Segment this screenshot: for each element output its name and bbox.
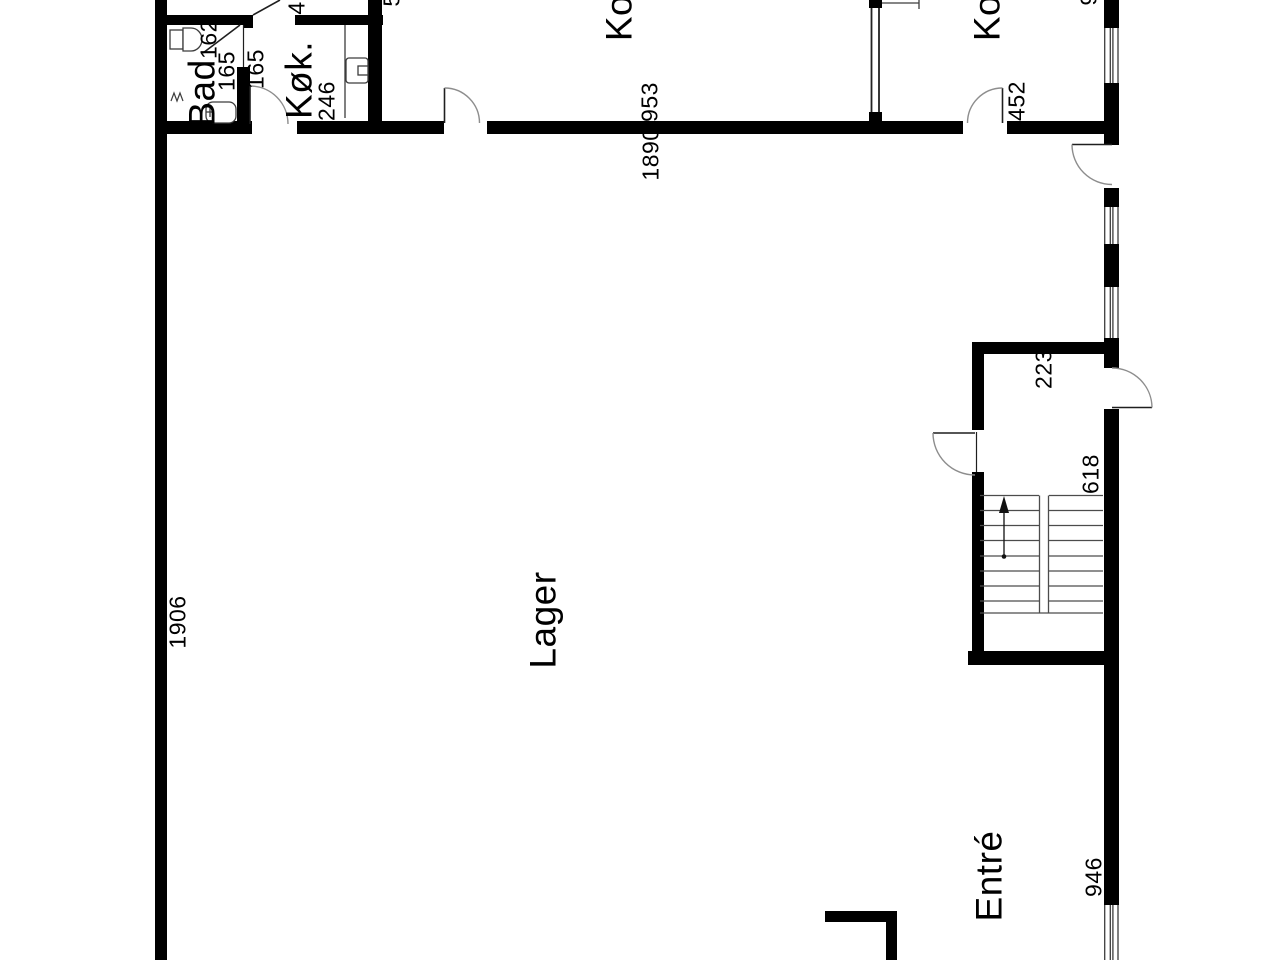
stove-icon xyxy=(346,58,368,83)
dimension-946: 946 xyxy=(1083,857,1106,897)
wall-main-horizontal-b xyxy=(297,121,444,134)
dimension-165-left: 165 xyxy=(216,51,239,91)
dimension-1890: 1890 xyxy=(640,127,663,180)
wall-entre-vertical xyxy=(886,911,897,960)
dimension-618: 618 xyxy=(1080,454,1103,494)
wall-main-horizontal-c xyxy=(487,121,963,134)
wall-stair-left-a xyxy=(972,342,984,430)
floor-plan-canvas: Bad Køk. Ko Ko Lager Entré 162 165 165 2… xyxy=(0,0,1280,960)
window-right-4 xyxy=(1103,905,1119,960)
door-arc-office-2 xyxy=(968,88,1003,123)
room-label-entre: Entré xyxy=(971,831,1008,922)
wall-partition-cap-top xyxy=(869,0,882,8)
dimension-246: 246 xyxy=(316,81,339,121)
cutoff-furniture-lines xyxy=(882,0,919,9)
wall-stair-left-b xyxy=(972,472,984,654)
wall-left-exterior xyxy=(155,0,167,960)
dimension-fragment-top-1: 5 xyxy=(381,0,404,7)
stair-flight-left xyxy=(980,496,1039,602)
wall-partition-cap-bottom xyxy=(869,112,882,122)
stair-direction-arrow xyxy=(999,496,1009,559)
wall-right-seg-2 xyxy=(1104,83,1119,145)
wall-top-door-stub xyxy=(243,15,253,28)
wall-stair-bottom xyxy=(968,651,1119,665)
wall-main-horizontal-d xyxy=(1007,121,1119,134)
wall-kitchen-right xyxy=(368,0,382,134)
room-label-kontor-2: Ko xyxy=(969,0,1006,41)
window-right-2 xyxy=(1103,207,1119,244)
wall-right-seg-4 xyxy=(1104,244,1119,287)
room-label-kontor-1: Ko xyxy=(601,0,638,41)
dimension-1906: 1906 xyxy=(167,595,190,648)
staircase xyxy=(980,496,1103,614)
wall-right-seg-1 xyxy=(1104,0,1119,28)
door-arc-right-upper xyxy=(1072,145,1112,185)
door-leaf-upper-room xyxy=(253,0,280,15)
stair-flight-right xyxy=(1049,496,1103,602)
dimension-165-right: 165 xyxy=(245,49,268,89)
door-arc-stair-east xyxy=(1112,368,1152,408)
door-arc-stair-west xyxy=(933,433,975,475)
window-right-3 xyxy=(1103,287,1119,338)
dimension-223: 223 xyxy=(1033,349,1056,389)
glass-partition-offices xyxy=(869,8,882,112)
window-right-1 xyxy=(1103,28,1119,83)
dimension-953: 953 xyxy=(639,82,662,122)
door-arcs xyxy=(250,86,1152,475)
door-arc-office-1 xyxy=(445,88,480,123)
room-label-kok: Køk. xyxy=(281,41,318,119)
room-label-lager: Lager xyxy=(525,571,562,668)
dimension-452: 452 xyxy=(1006,81,1029,121)
wall-right-seg-3 xyxy=(1104,188,1119,207)
dimension-4-partial: 4 xyxy=(286,1,309,14)
dimension-fragment-top-2: 9 xyxy=(1078,0,1101,6)
